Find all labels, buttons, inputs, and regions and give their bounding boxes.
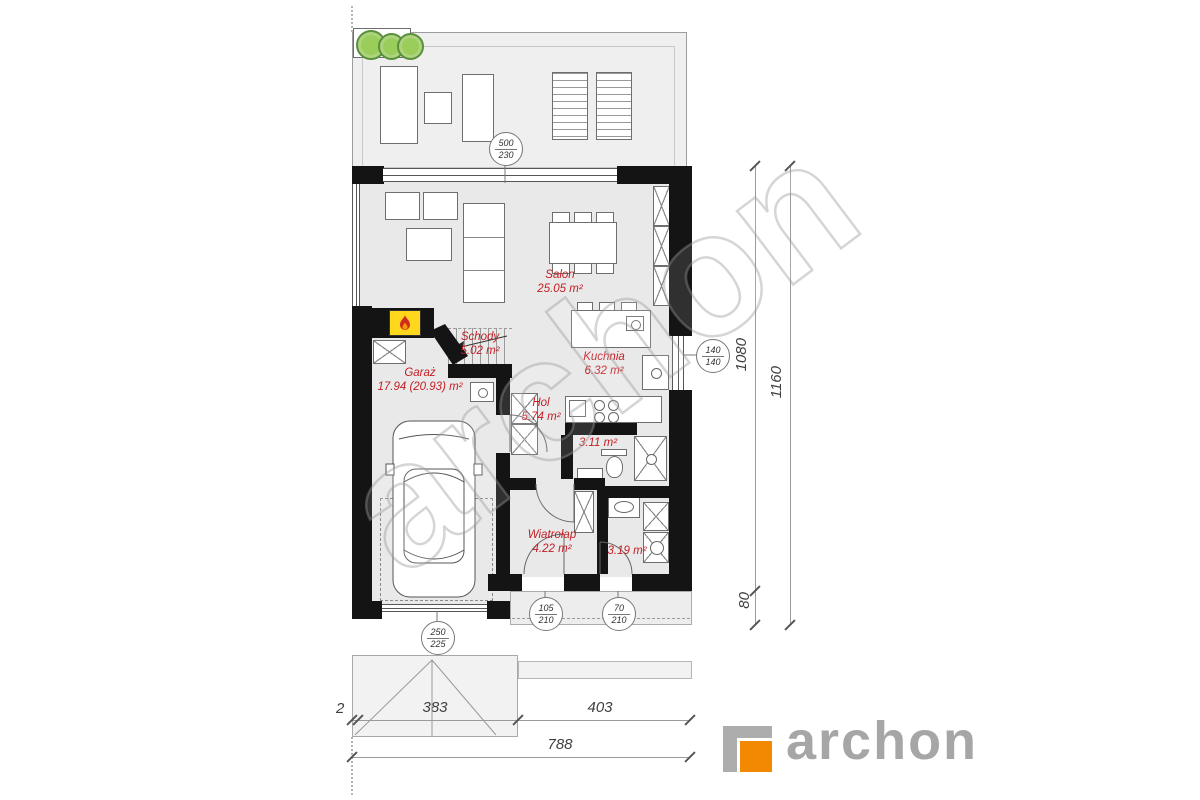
room-name: Garaż xyxy=(350,366,490,380)
armchair xyxy=(385,192,420,220)
wall-segment xyxy=(669,184,692,336)
wall-segment xyxy=(352,306,372,606)
room-label-salon: Salon 25.05 m² xyxy=(490,268,630,297)
garage-clearance-dashed xyxy=(380,498,493,601)
garage-door-line xyxy=(382,604,487,612)
room-area: 6.32 m² xyxy=(534,364,674,378)
terrace-side-table xyxy=(424,92,452,124)
opening-height: 210 xyxy=(535,614,556,625)
opening-width: 105 xyxy=(538,603,553,613)
armchair xyxy=(423,192,458,220)
tall-cabinet xyxy=(653,266,670,306)
opening-height: 140 xyxy=(702,356,723,367)
room-label-garaz: Garaż 17.94 (20.93) m² xyxy=(350,366,490,395)
room-area: 5.74 m² xyxy=(471,410,611,424)
opening-width: 140 xyxy=(705,345,720,355)
dining-table xyxy=(549,222,617,264)
window-size-marker: 140 140 xyxy=(696,339,730,373)
room-label-kuchnia: Kuchnia 6.32 m² xyxy=(534,350,674,379)
dimension-value: 2 xyxy=(336,700,344,717)
room-name: Schody xyxy=(410,330,550,344)
dimension-line xyxy=(352,720,690,721)
tree-icon xyxy=(397,33,424,60)
dining-chair xyxy=(552,212,570,223)
garage-door-size-marker: 250 225 xyxy=(421,621,455,655)
opening-height: 230 xyxy=(495,149,516,160)
utility-sink-bowl xyxy=(614,501,634,513)
chimney-block xyxy=(373,340,406,364)
room-name: Salon xyxy=(490,268,630,282)
wall-segment xyxy=(669,390,692,591)
dimension-value: 788 xyxy=(510,736,610,753)
wall-segment xyxy=(488,574,522,591)
room-area: 3.11 m² xyxy=(528,436,668,450)
salon-side-window xyxy=(352,184,360,306)
wall-segment xyxy=(352,601,382,619)
entry-door-size-marker: 105 210 xyxy=(529,597,563,631)
room-area: 25.05 m² xyxy=(490,282,630,296)
tech-door-size-marker: 70 210 xyxy=(602,597,636,631)
opening-height: 225 xyxy=(427,638,448,649)
wall-segment xyxy=(632,574,692,591)
terrace-armchair xyxy=(462,74,494,142)
dimension-value: 1080 xyxy=(733,338,750,371)
wall-segment xyxy=(487,601,510,619)
terrace-armchair xyxy=(380,66,418,144)
opening-width: 250 xyxy=(430,627,445,637)
room-name: Kuchnia xyxy=(534,350,674,364)
wall-segment xyxy=(565,423,637,435)
room-label-bathroom: 3.11 m² xyxy=(528,436,668,450)
dining-chair xyxy=(574,212,592,223)
dining-chair xyxy=(596,212,614,223)
logo-wordmark: archon xyxy=(786,714,978,768)
logo-orange-square xyxy=(737,738,775,775)
dimension-line xyxy=(352,757,690,758)
opening-width: 500 xyxy=(498,138,513,148)
dimension-value: 403 xyxy=(550,699,650,716)
room-name: Wiatrołap xyxy=(482,528,622,542)
dimension-value: 80 xyxy=(736,592,753,609)
room-label-schody: Schody 5.02 m² xyxy=(410,330,550,359)
opening-width: 70 xyxy=(614,603,624,613)
tall-cabinet xyxy=(653,186,670,226)
porch-roof-outline xyxy=(518,661,692,679)
dimension-line xyxy=(755,166,756,625)
wall-segment xyxy=(510,478,536,490)
garage-roof-outline xyxy=(352,655,518,737)
utility-cabinet xyxy=(643,502,669,531)
coffee-table xyxy=(406,228,452,261)
dimension-value: 383 xyxy=(385,699,485,716)
floor-plan-canvas: Salon 25.05 m² Schody 5.02 m² Garaż 17.9… xyxy=(0,0,1200,800)
wall-segment xyxy=(605,486,669,498)
terrace-window xyxy=(383,168,617,182)
room-area: 5.02 m² xyxy=(410,344,550,358)
vestibule-wardrobe xyxy=(574,491,594,533)
dimension-value: 1160 xyxy=(768,366,785,398)
shower-drain xyxy=(646,454,657,465)
wall-segment xyxy=(574,478,605,490)
room-area: 3.19 m² xyxy=(557,544,697,558)
tall-cabinet xyxy=(653,226,670,266)
window-size-marker: 500 230 xyxy=(489,132,523,166)
toilet xyxy=(606,456,623,478)
sun-lounger xyxy=(552,72,588,140)
lot-boundary-line xyxy=(351,737,353,795)
dimension-line xyxy=(790,166,791,625)
room-area: 17.94 (20.93) m² xyxy=(350,380,490,394)
sink-drain xyxy=(631,320,641,330)
wall-segment xyxy=(617,166,692,184)
wall-segment xyxy=(352,166,384,184)
room-name: Hol xyxy=(471,396,611,410)
room-label-utility: 3.19 m² xyxy=(557,544,697,558)
opening-height: 210 xyxy=(608,614,629,625)
sun-lounger xyxy=(596,72,632,140)
wall-segment xyxy=(564,574,600,591)
room-label-hol: Hol 5.74 m² xyxy=(471,396,611,425)
